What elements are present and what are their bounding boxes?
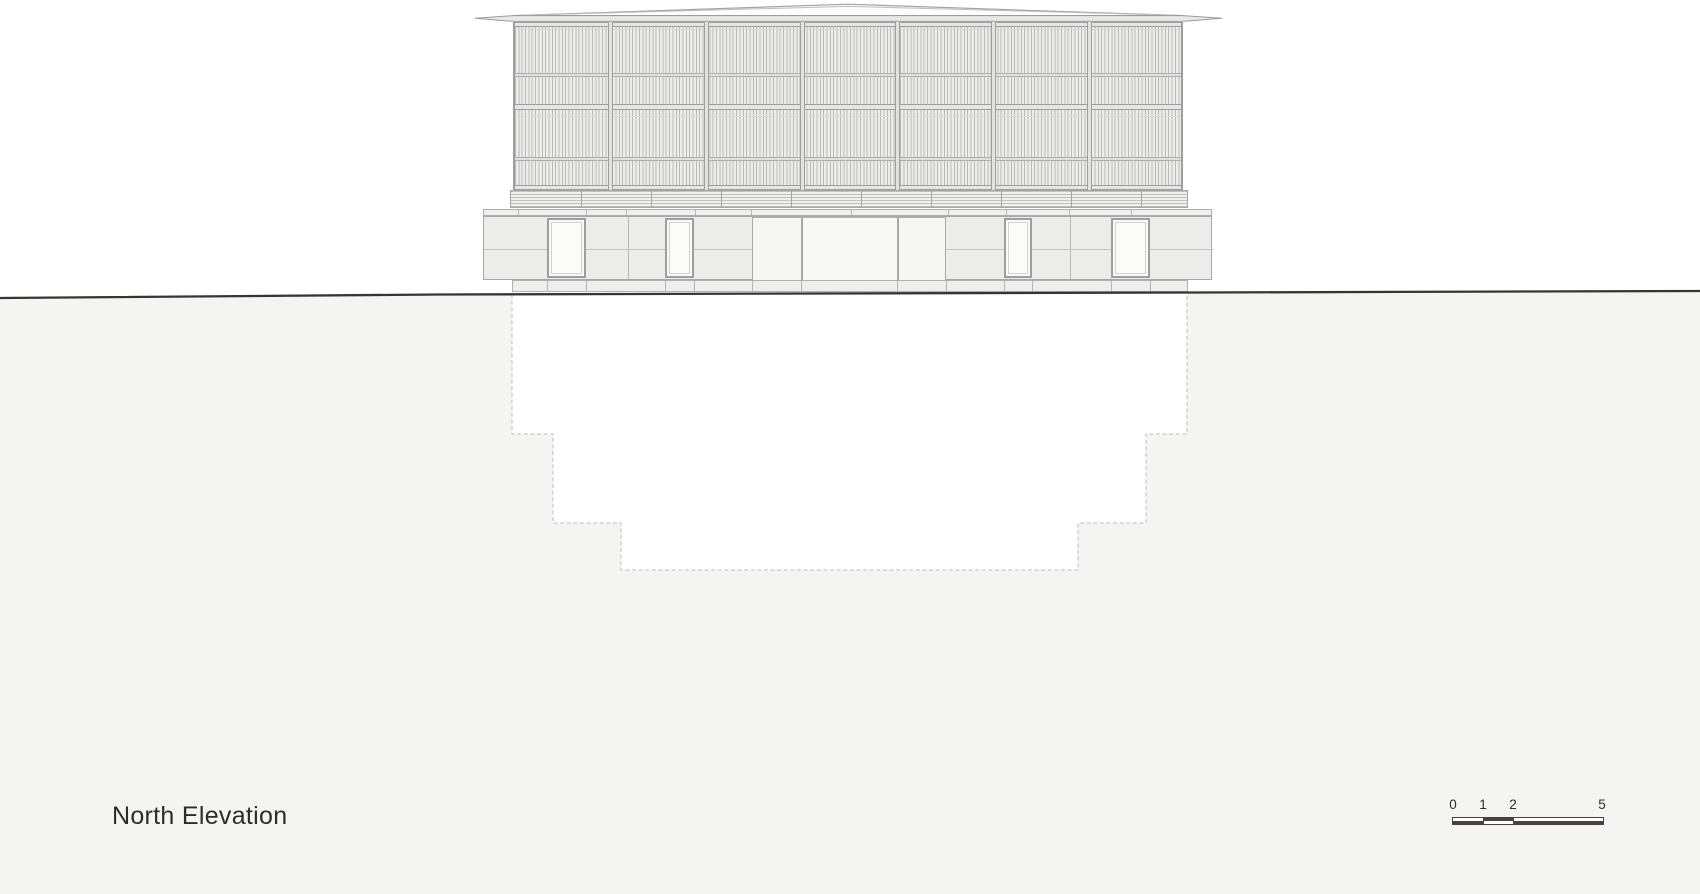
scale-bar: 0 1 2 5 <box>1452 797 1604 827</box>
scale-tick <box>1513 818 1514 824</box>
ground-line-layer <box>0 0 1700 894</box>
scale-tick <box>1483 818 1484 824</box>
elevation-drawing-canvas: North Elevation 0 1 2 5 <box>0 0 1700 894</box>
scale-segment <box>1513 821 1603 824</box>
scale-segment <box>1453 821 1483 824</box>
scale-label-1: 1 <box>1479 797 1487 812</box>
scale-bar-graphic <box>1452 817 1604 825</box>
drawing-title: North Elevation <box>112 802 287 831</box>
scale-label-2: 2 <box>1509 797 1517 812</box>
ground-line <box>0 291 1700 298</box>
scale-segment <box>1483 821 1513 824</box>
scale-label-0: 0 <box>1449 797 1457 812</box>
scale-label-5: 5 <box>1598 797 1606 812</box>
